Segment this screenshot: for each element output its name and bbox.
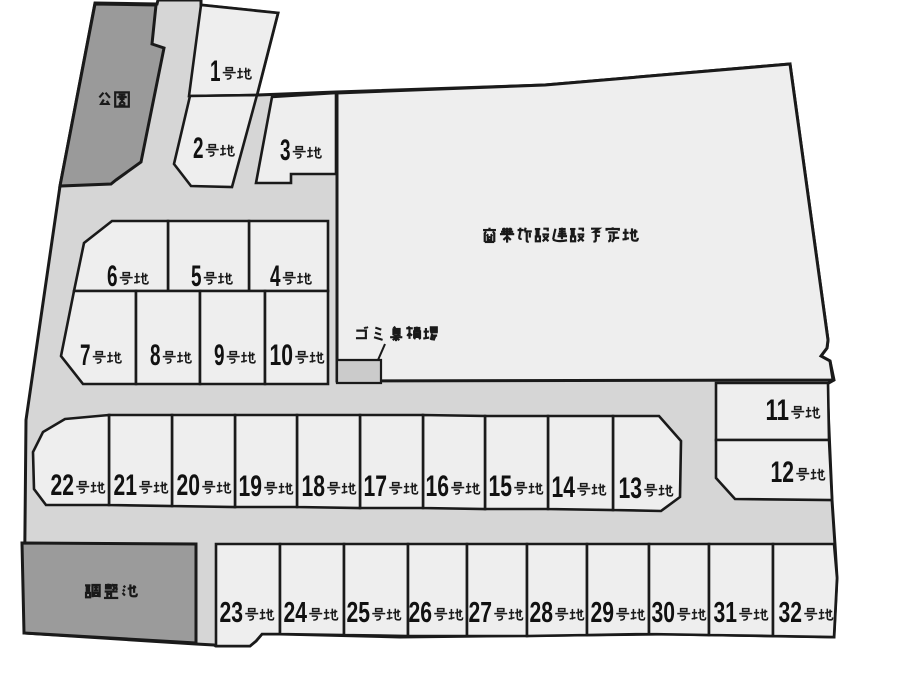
svg-text:22: 22 (51, 469, 75, 502)
svg-text:3: 3 (280, 134, 291, 167)
svg-text:1: 1 (210, 55, 221, 88)
svg-text:5: 5 (191, 260, 202, 293)
svg-text:31: 31 (714, 597, 738, 629)
svg-text:6: 6 (107, 260, 118, 293)
svg-text:8: 8 (150, 339, 161, 372)
svg-text:12: 12 (771, 456, 795, 489)
svg-text:32: 32 (779, 597, 803, 629)
svg-text:10: 10 (270, 339, 294, 372)
svg-text:23: 23 (220, 597, 244, 629)
svg-text:27: 27 (469, 597, 493, 629)
svg-text:25: 25 (347, 597, 371, 629)
svg-text:15: 15 (489, 470, 513, 503)
svg-text:4: 4 (270, 260, 281, 293)
svg-text:26: 26 (409, 597, 433, 629)
svg-text:11: 11 (766, 394, 790, 427)
svg-text:19: 19 (239, 470, 263, 503)
svg-text:17: 17 (364, 470, 388, 503)
svg-text:20: 20 (177, 469, 201, 502)
svg-text:16: 16 (426, 470, 450, 503)
svg-text:9: 9 (214, 339, 225, 372)
svg-text:30: 30 (652, 597, 676, 629)
svg-text:13: 13 (619, 472, 643, 505)
svg-text:29: 29 (591, 597, 615, 629)
svg-text:14: 14 (552, 471, 576, 504)
svg-text:24: 24 (284, 597, 308, 629)
svg-text:2: 2 (193, 132, 204, 165)
svg-text:18: 18 (302, 470, 326, 503)
svg-text:7: 7 (80, 339, 91, 372)
svg-text:21: 21 (114, 469, 138, 502)
svg-text:28: 28 (530, 597, 554, 629)
